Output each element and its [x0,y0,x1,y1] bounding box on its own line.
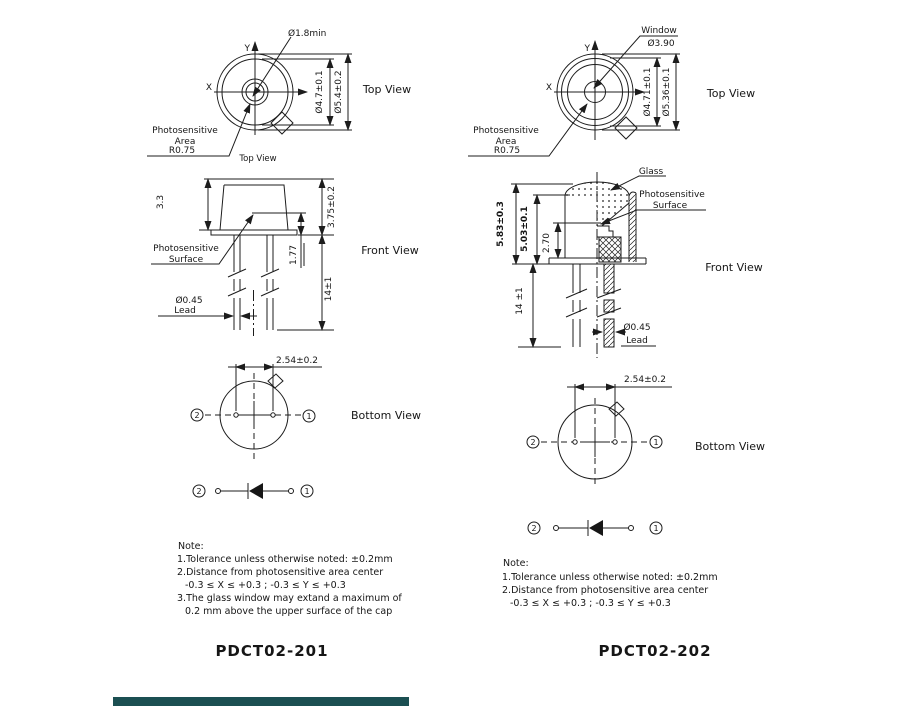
lead-2-hole [234,413,238,417]
dim-inner-dia: Ø4.7±0.1 [314,70,325,113]
pdct02-202-top-view: Window Ø3.90 Y X Photosensitive Area R0.… [468,26,755,156]
lead-right [267,235,273,330]
dim-lead-pitch: 2.54±0.2 [276,356,318,366]
dim-outer-dia: Ø5.36±0.1 [661,68,672,117]
dim-surface-depth: 1.77 [289,245,299,265]
y-axis-label: Y [244,44,251,54]
photosensitive-label: Photosensitive [639,190,705,200]
photodiode-symbol [249,483,263,499]
part-number-202: PDCT02-202 [598,642,711,660]
dim-total-height: 5.83±0.3 [496,201,506,247]
top-view-label: Top View [706,87,755,100]
glass-dome-fill [565,182,629,196]
lead-left [234,235,240,330]
lead-diameter-label: Ø0.45 [623,322,650,333]
pdct02-201-schematic: 2 1 [193,483,313,499]
radius-label: R0.75 [494,146,520,156]
key-notch [268,374,283,388]
pin-2-number: 2 [531,524,536,533]
radius-label: R0.75 [169,146,195,156]
lead-diameter-label: Ø0.45 [175,295,202,306]
lead-1-hole [613,440,617,444]
photosensitive-label: Photosensitive [152,126,218,136]
pin-2-number: 2 [530,438,535,447]
package-drawing: Ø1.8min Y X Photosensitive Area R0.75 Ø4… [0,0,897,706]
bottom-view-label: Bottom View [695,440,765,453]
bottom-view-label: Bottom View [351,409,421,422]
window-leader [253,37,291,96]
dim-lead-length: 14±1 [324,277,334,302]
lead-2-hole [573,440,577,444]
index-tab [615,117,637,139]
note-line: -0.3 ≤ X ≤ +0.3 ; -0.3 ≤ Y ≤ +0.3 [510,598,671,609]
dim-lead-pitch: 2.54±0.2 [624,375,666,385]
cap-outline [220,185,288,230]
pdct02-201-front-view: 3.3 3.75±0.2 1.77 14±1 Photosensitive Su… [151,179,419,336]
lead-1-hole [271,413,275,417]
pin-2-number: 2 [194,411,199,420]
note-line: 3.The glass window may extand a maximum … [177,593,402,604]
chip-step [597,226,613,237]
lead-label: Lead [626,336,648,346]
pdct02-202-front-view: Glass Photosensitive Surface 5.83±0.3 5.… [496,167,763,358]
top-view-label: Top View [362,83,411,96]
x-axis-label: X [546,83,552,93]
lead-label: Lead [174,306,196,316]
pin-1-number: 1 [653,524,658,533]
dim-inner-dia: Ø4.71±0.1 [642,68,653,117]
window-diameter-label: Ø3.90 [647,38,674,49]
y-axis-label: Y [584,44,591,54]
note-line: -0.3 ≤ X ≤ +0.3 ; -0.3 ≤ Y ≤ +0.3 [185,580,346,591]
front-view-label: Front View [705,261,762,274]
lead-right [604,264,614,347]
pdct02-202-schematic: 2 1 [528,520,662,536]
dim-cap-height: 5.03±0.1 [520,206,530,252]
window-diameter-label: Ø1.8min [288,28,326,39]
note-line: 0.2 mm above the upper surface of the ca… [185,606,392,617]
note-heading: Note: [178,541,204,552]
pin-1-number: 1 [304,487,309,496]
photosensitive-label: Photosensitive [153,244,219,254]
pin-1-number: 1 [306,412,311,421]
dim-outer-dia: Ø5.4±0.2 [333,70,344,113]
note-line: 2.Distance from photosensitive area cent… [177,567,383,578]
note-heading: Note: [503,558,529,569]
top-view-caption: Top View [238,154,276,164]
note-line: 2.Distance from photosensitive area cent… [502,585,708,596]
dim-surface-depth: 2.70 [542,233,552,253]
note-line: 1.Tolerance unless otherwise noted: ±0.2… [502,572,718,583]
surface-label: Surface [169,255,204,265]
pdct02-202-notes: Note: 1.Tolerance unless otherwise noted… [502,558,718,609]
note-line: 1.Tolerance unless otherwise noted: ±0.2… [177,554,393,565]
pin-2-number: 2 [196,487,201,496]
dim-lead-length: 14 ±1 [515,287,525,315]
photodiode-symbol [589,520,603,536]
glass-label: Glass [639,167,664,177]
lead-left [573,264,580,347]
surface-label: Surface [653,201,688,211]
pdct02-201-bottom-view: 2.54±0.2 2 1 Bottom View [191,356,421,459]
dim-cap-height: 3.3 [156,195,166,209]
bottom-bar [113,697,409,706]
pdct02-201-notes: Note: 1.Tolerance unless otherwise noted… [177,541,402,617]
pin-1-number: 1 [653,438,658,447]
datasheet-page: Ø1.8min Y X Photosensitive Area R0.75 Ø4… [0,0,897,706]
front-view-label: Front View [361,244,418,257]
pdct02-201-top-view: Ø1.8min Y X Photosensitive Area R0.75 Ø4… [147,28,411,164]
part-number-201: PDCT02-201 [215,642,328,660]
photosensitive-label: Photosensitive [473,126,539,136]
flange [211,230,297,235]
window-label: Window [641,26,677,36]
dim-total-height: 3.75±0.2 [327,186,337,228]
index-tab [271,112,293,134]
x-axis-label: X [206,83,212,93]
pdct02-202-bottom-view: 2.54±0.2 2 1 Bottom View [527,375,765,487]
